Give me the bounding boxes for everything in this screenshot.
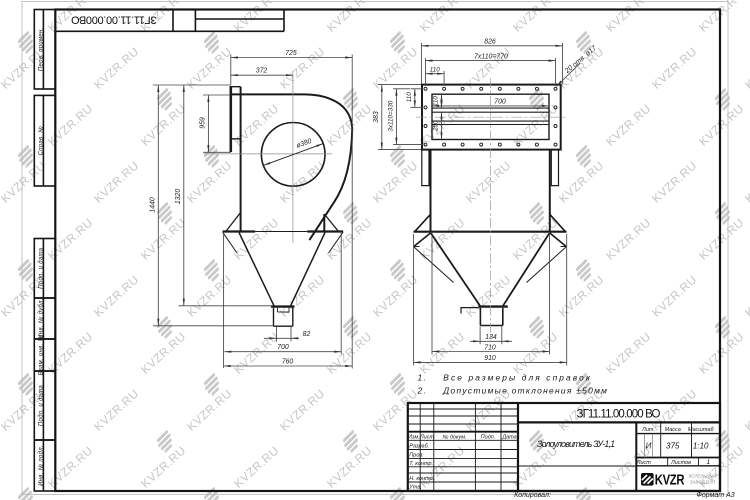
svg-text:1440: 1440 — [150, 197, 157, 212]
svg-text:Копировал:: Копировал: — [514, 492, 551, 499]
svg-text:1:10: 1:10 — [693, 442, 709, 451]
svg-text:82: 82 — [303, 331, 311, 338]
svg-text:725: 725 — [285, 50, 297, 57]
svg-text:Лист: Лист — [636, 460, 652, 466]
svg-text:Формат А3: Формат А3 — [696, 492, 734, 499]
svg-text:134: 134 — [485, 334, 497, 341]
svg-text:372: 372 — [256, 68, 268, 75]
svg-text:Пров.: Пров. — [409, 452, 424, 458]
svg-text:110: 110 — [406, 92, 413, 103]
svg-text:Лист: Лист — [419, 435, 435, 441]
svg-text:Инв. № дубл.: Инв. № дубл. — [38, 298, 45, 339]
svg-text:1320: 1320 — [175, 189, 182, 204]
svg-text:KVZR: KVZR — [655, 471, 685, 488]
svg-text:7х110=770: 7х110=770 — [474, 53, 508, 60]
svg-text:Подп. и дата: Подп. и дата — [39, 247, 45, 289]
svg-text:Подп. и дата: Подп. и дата — [39, 385, 45, 427]
svg-text:Утв.: Утв. — [408, 485, 422, 491]
svg-text:1: 1 — [706, 459, 710, 466]
svg-text:250: 250 — [432, 120, 439, 132]
svg-text:760: 760 — [282, 359, 294, 366]
svg-text:Масса: Масса — [665, 427, 681, 433]
svg-text:Т. контр.: Т. контр. — [409, 461, 433, 467]
svg-text:Все размеры для справок: Все размеры для справок — [443, 372, 592, 382]
svg-text:959: 959 — [200, 117, 207, 129]
svg-text:Перв. примен.: Перв. примен. — [39, 27, 45, 71]
svg-text:ЗАВОД РЭП: ЗАВОД РЭП — [690, 480, 716, 485]
svg-text:Золоуловитель ЗУ-1,1: Золоуловитель ЗУ-1,1 — [537, 439, 615, 449]
svg-text:Масштаб: Масштаб — [688, 427, 715, 433]
svg-text:КОТЕЛЬНЫЙ: КОТЕЛЬНЫЙ — [689, 474, 717, 479]
svg-text:700: 700 — [277, 344, 289, 351]
svg-text:383: 383 — [373, 111, 380, 123]
svg-text:Допустимые отклонения ±50мм: Допустимые отклонения ±50мм — [442, 386, 608, 396]
svg-text:110: 110 — [432, 96, 439, 107]
svg-text:Подп.: Подп. — [481, 435, 496, 441]
svg-text:Справ. №: Справ. № — [38, 126, 45, 156]
svg-text:1.: 1. — [418, 372, 428, 382]
svg-text:2.: 2. — [417, 386, 428, 396]
svg-text:№ докум.: № докум. — [442, 435, 466, 441]
svg-text:910: 910 — [484, 355, 496, 362]
svg-text:Изм.: Изм. — [408, 435, 420, 441]
svg-text:Н. контр.: Н. контр. — [409, 476, 434, 482]
svg-text:Листов: Листов — [670, 460, 691, 466]
svg-text:700: 700 — [494, 98, 506, 105]
svg-text:3х110=330: 3х110=330 — [388, 100, 395, 131]
svg-text:Взам. инв. №: Взам. инв. № — [38, 334, 45, 375]
svg-text:110: 110 — [430, 66, 441, 73]
svg-text:Инв. № подл.: Инв. № подл. — [38, 445, 45, 486]
svg-text:826: 826 — [484, 38, 496, 45]
svg-text:И: И — [646, 442, 652, 451]
svg-text:Лит.: Лит. — [641, 427, 655, 433]
svg-text:Разраб.: Разраб. — [409, 444, 429, 450]
svg-text:ЗГ11.11.00.000 ВО: ЗГ11.11.00.000 ВО — [577, 409, 661, 421]
svg-text:Дата: Дата — [501, 435, 517, 441]
svg-text:375: 375 — [666, 442, 680, 451]
svg-text:710: 710 — [484, 345, 496, 352]
svg-text:ЗГ11.11.00.000ВО: ЗГ11.11.00.000ВО — [71, 14, 157, 26]
